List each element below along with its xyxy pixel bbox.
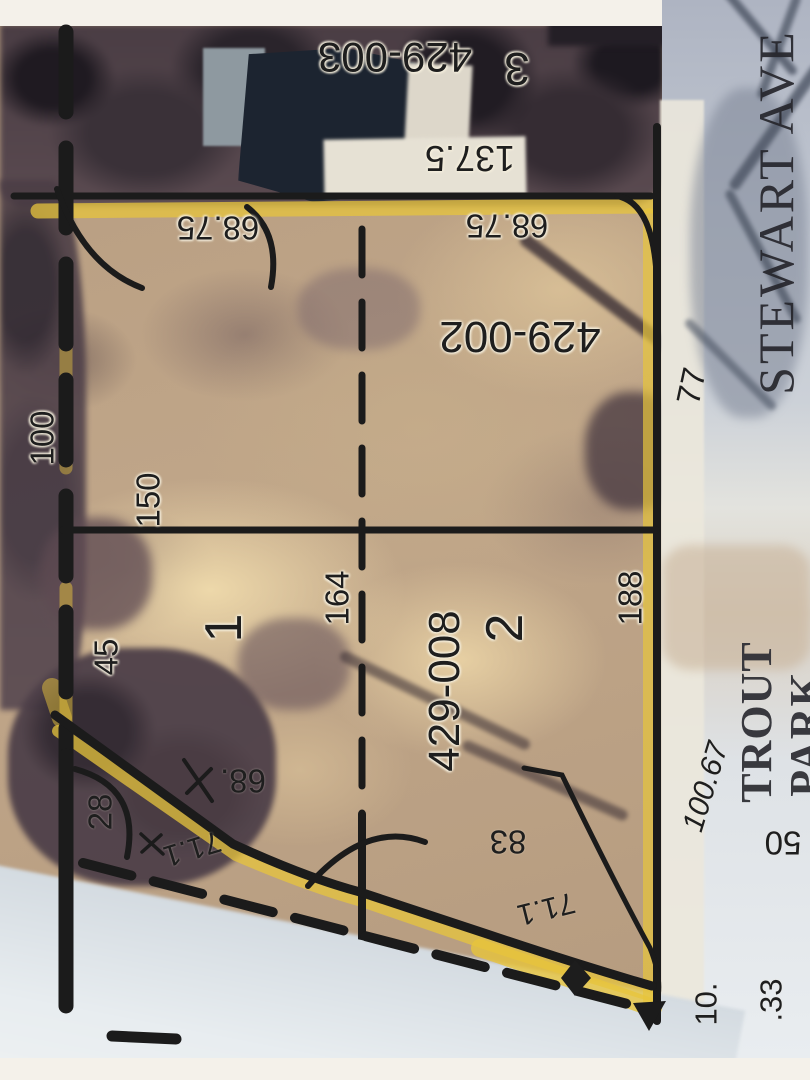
dim-100-67: 100.67 xyxy=(678,739,734,836)
dim-68: 68. xyxy=(220,765,266,798)
parcel-id-429-003: 429-003 xyxy=(318,36,472,78)
plat-map-photo: 3429-003137.568.7568.75429-0027710015016… xyxy=(0,0,810,1080)
dim-100: 100 xyxy=(26,410,59,465)
dim-71-1-west: 71.1 xyxy=(160,825,225,871)
dim-33: .33 xyxy=(756,978,787,1021)
dim-137-5: 137.5 xyxy=(425,140,515,176)
map-labels-layer: 3429-003137.568.7568.75429-0027710015016… xyxy=(0,0,810,1080)
dim-28: 28 xyxy=(84,794,117,831)
street-name-park: PARK xyxy=(784,671,810,796)
lot-number-3: 3 xyxy=(504,46,530,92)
dim-45: 45 xyxy=(90,639,123,676)
parcel-id-429-008: 429-008 xyxy=(423,610,467,771)
dim-50: 50 xyxy=(765,827,802,860)
street-name-trout: TROUT xyxy=(735,641,779,802)
dim-71-1-south: 71.1 xyxy=(514,886,578,929)
street-name-stewart-ave: STEWART AVE xyxy=(751,29,801,395)
dim-68-75-west: 68.75 xyxy=(177,212,260,245)
dim-150: 150 xyxy=(132,472,165,527)
dim-188: 188 xyxy=(614,570,647,625)
dim-68-75-east: 68.75 xyxy=(466,210,549,243)
dim-77: 77 xyxy=(671,365,711,408)
dim-164: 164 xyxy=(321,570,354,625)
lot-number-2: 2 xyxy=(479,614,531,643)
dim-10: 10. xyxy=(691,982,722,1025)
parcel-id-429-002: 429-002 xyxy=(439,314,600,358)
lot-number-1: 1 xyxy=(198,614,250,643)
dim-83: 83 xyxy=(490,826,527,859)
